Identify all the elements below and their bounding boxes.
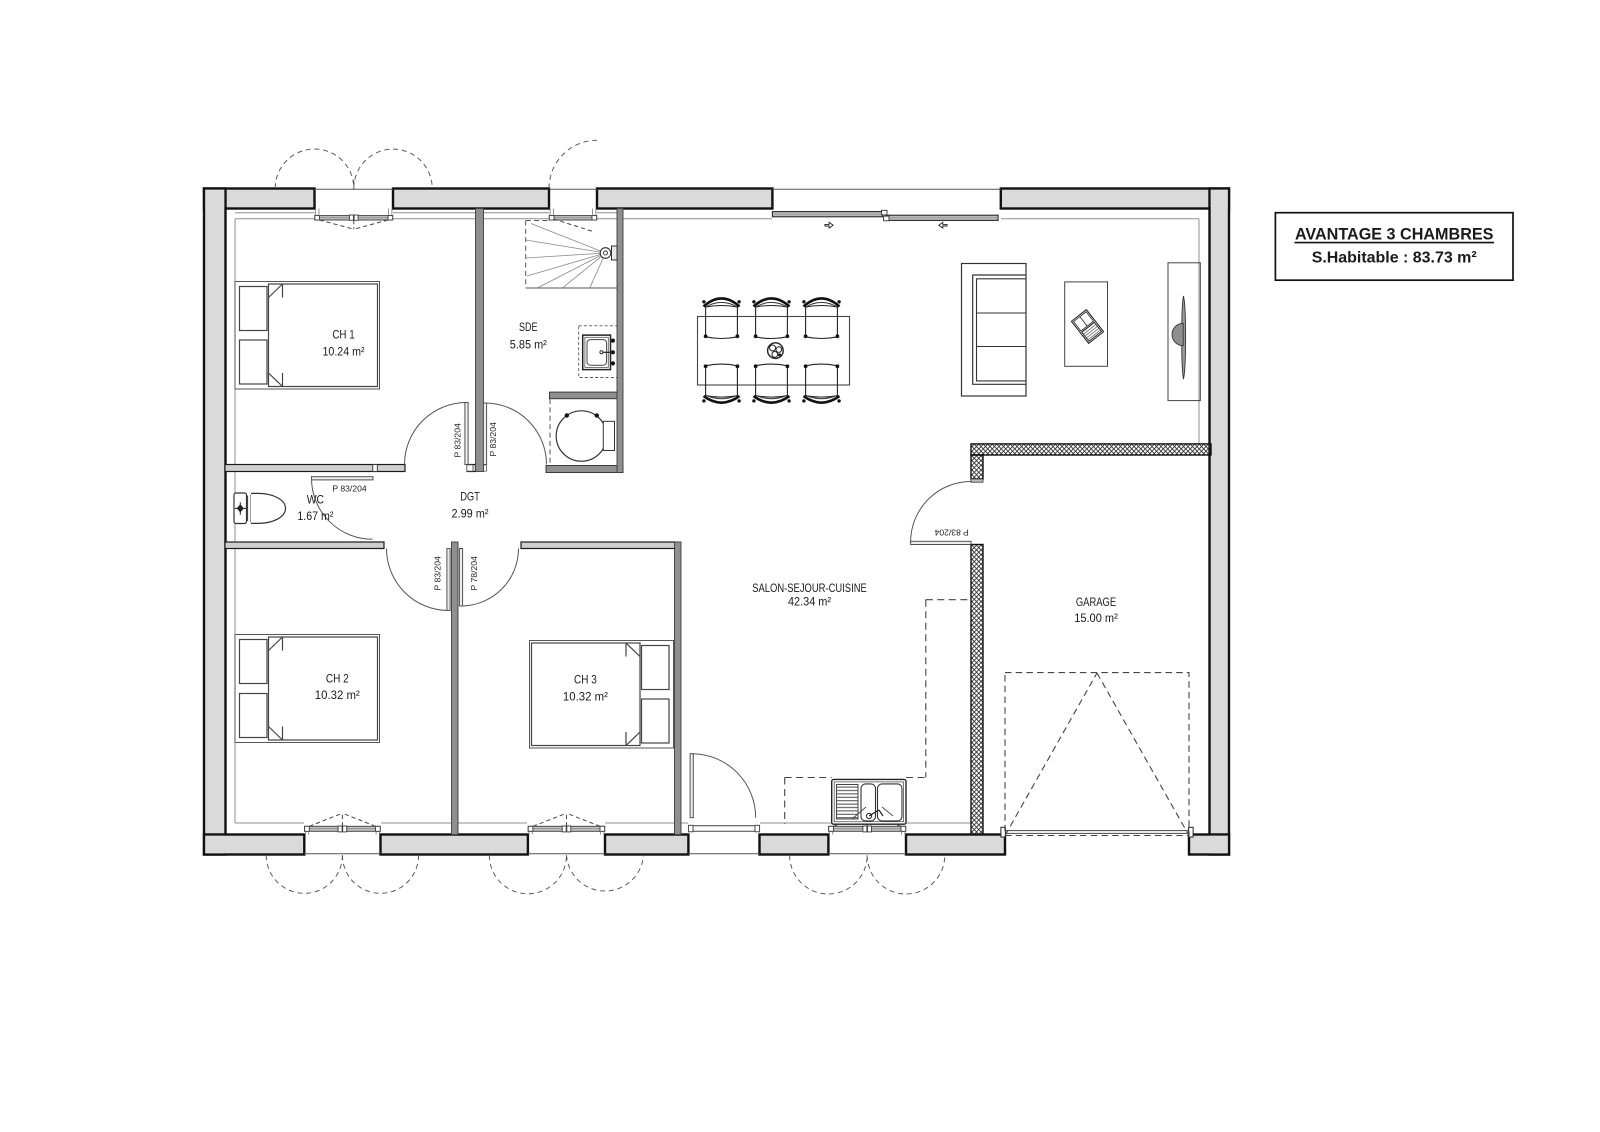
svg-text:DGT: DGT <box>460 490 480 504</box>
svg-text:P 83/204: P 83/204 <box>488 422 498 456</box>
svg-text:WC: WC <box>307 493 325 507</box>
svg-text:P 78/204: P 78/204 <box>469 556 479 590</box>
svg-text:5.85 m²: 5.85 m² <box>510 337 547 351</box>
svg-text:10.24 m²: 10.24 m² <box>323 345 365 359</box>
svg-text:P 83/204: P 83/204 <box>934 528 968 538</box>
svg-text:42.34 m²: 42.34 m² <box>788 595 831 609</box>
svg-text:SDE: SDE <box>519 320 538 334</box>
svg-text:CH 2: CH 2 <box>326 671 349 685</box>
svg-text:S.Habitable : 83.73 m²: S.Habitable : 83.73 m² <box>1312 249 1477 266</box>
svg-text:CH 1: CH 1 <box>332 328 355 342</box>
svg-text:P 83/204: P 83/204 <box>433 556 443 590</box>
svg-text:GARAGE: GARAGE <box>1076 595 1116 609</box>
svg-text:SALON-SEJOUR-CUISINE: SALON-SEJOUR-CUISINE <box>752 581 867 595</box>
svg-text:10.32 m²: 10.32 m² <box>563 689 608 703</box>
svg-text:P 83/204: P 83/204 <box>332 484 366 494</box>
svg-text:P 83/204: P 83/204 <box>453 423 463 457</box>
svg-text:1.67 m²: 1.67 m² <box>297 509 333 523</box>
svg-text:15.00 m²: 15.00 m² <box>1074 611 1118 625</box>
svg-text:AVANTAGE 3 CHAMBRES: AVANTAGE 3 CHAMBRES <box>1295 225 1494 244</box>
svg-text:10.32 m²: 10.32 m² <box>315 688 360 702</box>
svg-text:2.99 m²: 2.99 m² <box>452 507 489 521</box>
svg-text:CH 3: CH 3 <box>574 673 597 687</box>
